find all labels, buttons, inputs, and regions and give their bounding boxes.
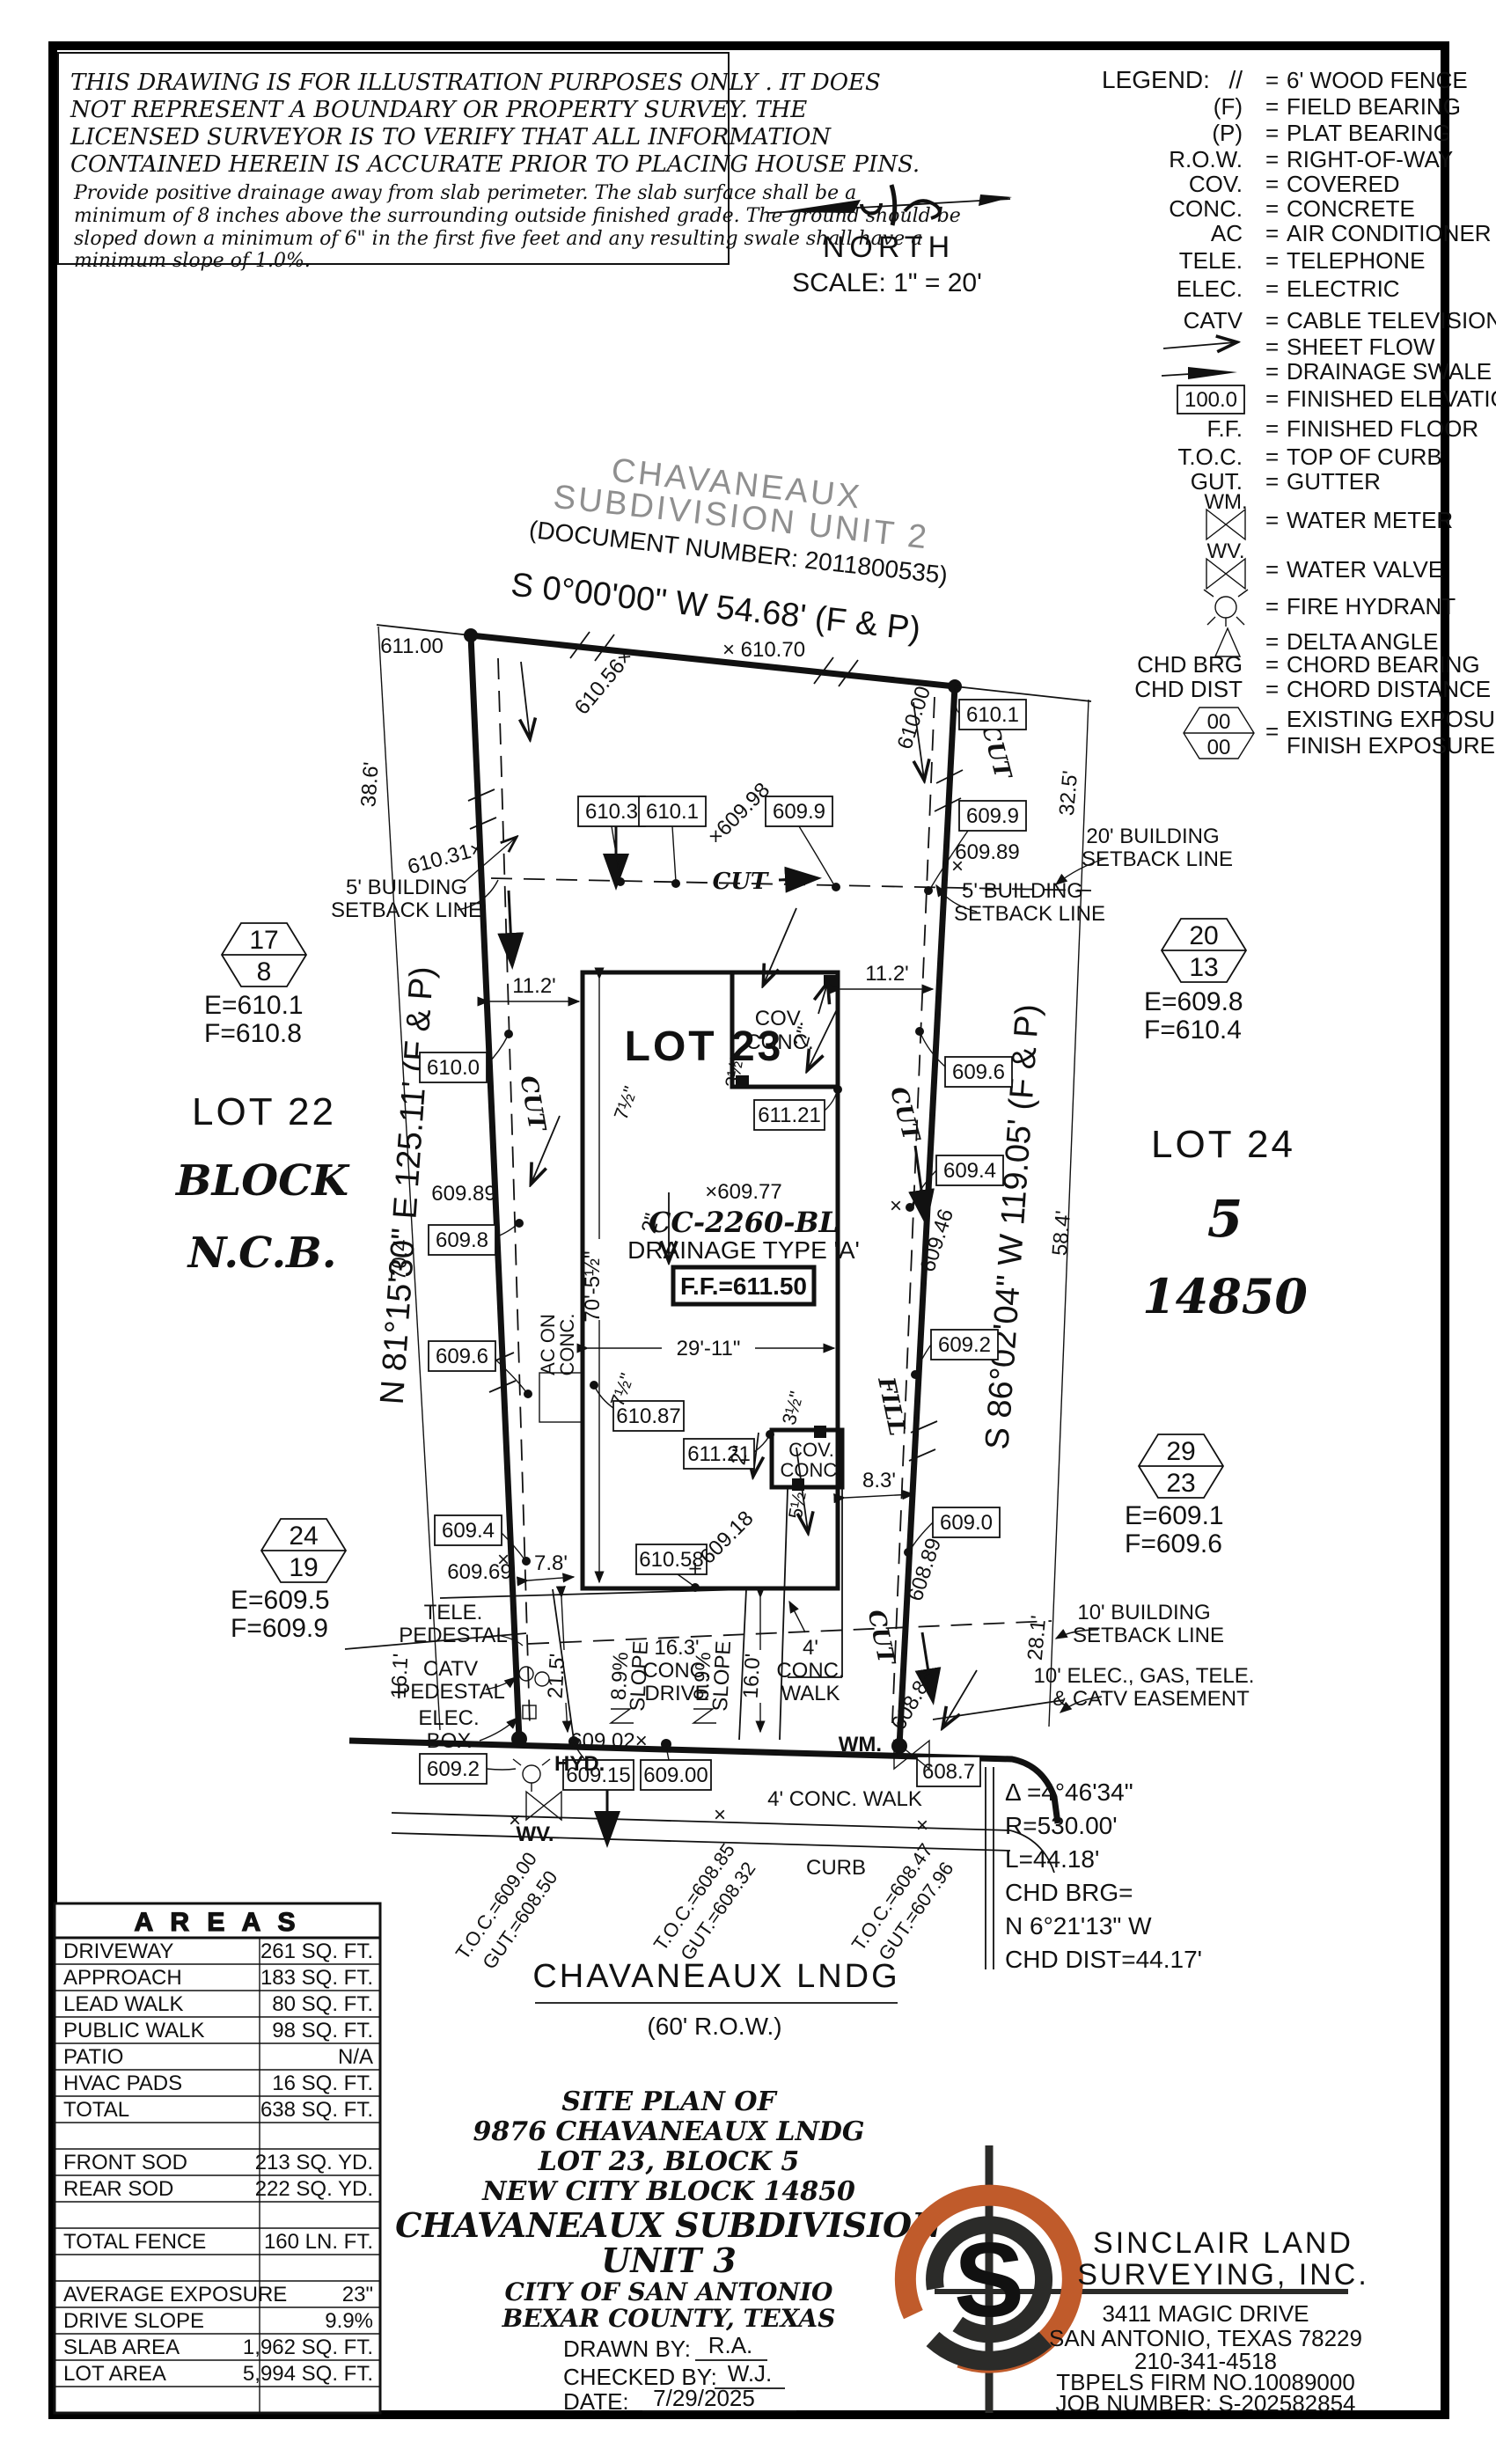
elev-609-00: 609.00 xyxy=(643,1764,708,1787)
scale-label: SCALE: 1" = 20' xyxy=(792,268,982,297)
drawn-by-label: DRAWN BY: xyxy=(563,2336,691,2362)
svg-text:F=609.6: F=609.6 xyxy=(1125,1529,1222,1558)
easement-line xyxy=(933,1700,1063,1720)
block-label: BLOCK xyxy=(174,1156,350,1206)
water-valve-symbol xyxy=(526,1792,561,1820)
svg-text:TOTAL FENCE: TOTAL FENCE xyxy=(63,2230,206,2254)
svg-text:17: 17 xyxy=(249,926,278,955)
svg-text:CONC.: CONC. xyxy=(776,1659,844,1683)
exposure-marker-29-23: 29 23 E=609.1 F=609.6 xyxy=(1125,1434,1224,1558)
water-valve-icon xyxy=(1206,559,1245,589)
svg-text:F=609.9: F=609.9 xyxy=(231,1614,328,1643)
svg-text:HVAC PADS: HVAC PADS xyxy=(63,2072,182,2095)
svg-text:SLOPE: SLOPE xyxy=(708,1640,736,1712)
svg-text:HYD.: HYD. xyxy=(554,1752,605,1776)
svg-text:DRIVEWAY: DRIVEWAY xyxy=(63,1940,173,1963)
title-address: 9876 CHAVANEAUX LNDG xyxy=(473,2116,864,2147)
svg-text:00: 00 xyxy=(1207,710,1231,734)
svg-text:4': 4' xyxy=(803,1636,818,1660)
drawn-by-value: R.A. xyxy=(708,2332,753,2358)
walk-street-label: 4' CONC. WALK xyxy=(767,1787,922,1811)
legend-sym-chd-dist: CHD DIST xyxy=(1134,676,1243,702)
svg-text:FINISHED ELEVATION: FINISHED ELEVATION xyxy=(1287,385,1496,412)
svg-text:19: 19 xyxy=(289,1553,318,1582)
elev-609-6-west: 609.6 xyxy=(436,1345,488,1368)
svg-text:222 SQ. YD.: 222 SQ. YD. xyxy=(255,2177,373,2201)
block-5-label: 5 xyxy=(1207,1189,1243,1249)
spot-610-31: 610.31× xyxy=(405,836,485,879)
svg-text:ELECTRIC: ELECTRIC xyxy=(1287,275,1400,302)
spot-609-69: 609.69 xyxy=(447,1560,511,1584)
swale-arrow xyxy=(509,891,512,964)
elev-610-1: 610.1 xyxy=(646,800,699,824)
svg-text:3½": 3½" xyxy=(778,1389,808,1427)
swale-arrow xyxy=(779,878,817,880)
spot-609-46: 609.46 xyxy=(916,1206,958,1275)
disclaimer-line: Provide positive drainage away from slab… xyxy=(73,182,856,204)
exposure-marker-20-13: 20 13 E=609.8 F=610.4 xyxy=(1144,919,1246,1045)
svg-text:CHORD BEARING: CHORD BEARING xyxy=(1287,651,1480,678)
dim-28-1: 28.1' xyxy=(1023,1615,1051,1661)
svg-text:N/A: N/A xyxy=(338,2045,373,2069)
spot-609-02: 609.02× xyxy=(570,1729,647,1753)
svg-text:6' WOOD FENCE: 6' WOOD FENCE xyxy=(1287,67,1468,93)
legend: LEGEND: // (F) (P) R.O.W. COV. CONC. AC … xyxy=(1102,66,1496,759)
svg-text:APPROACH: APPROACH xyxy=(63,1966,182,1990)
firm-name-line2: SURVEYING, INC. xyxy=(1077,2258,1369,2292)
swale-arrow xyxy=(915,1146,926,1221)
title-ncb: NEW CITY BLOCK 14850 xyxy=(481,2176,855,2207)
svg-text:LEAD WALK: LEAD WALK xyxy=(63,1992,184,2016)
title-subdivision: CHAVANEAUX SUBDIVISION xyxy=(395,2205,943,2245)
svg-text:PUBLIC WALK: PUBLIC WALK xyxy=(63,2019,205,2042)
legend-sym-finished-elev: 100.0 xyxy=(1184,388,1237,412)
corner-pin-sw xyxy=(511,1731,527,1747)
svg-text:F=610.8: F=610.8 xyxy=(204,1019,302,1048)
fill-label: FILL xyxy=(872,1374,911,1438)
curve-delta: Δ =4°46'34" xyxy=(1005,1778,1133,1806)
svg-text:20' BUILDING: 20' BUILDING xyxy=(1086,825,1219,848)
svg-text:LOT AREA: LOT AREA xyxy=(63,2362,166,2386)
water-meter-icon xyxy=(1206,510,1245,539)
svg-text:5½": 5½" xyxy=(784,1484,811,1521)
disclaimer-line: CONTAINED HEREIN IS ACCURATE PRIOR TO PL… xyxy=(70,151,920,178)
svg-text:=: = xyxy=(1265,651,1279,678)
svg-text:9.9%: 9.9% xyxy=(325,2309,373,2333)
spot-609-77: ×609.77 xyxy=(705,1180,781,1204)
legend-sym-catv: CATV xyxy=(1184,307,1243,334)
curve-length: L=44.18' xyxy=(1005,1845,1099,1873)
sheet-flow-arrow xyxy=(943,1670,977,1727)
svg-text:& CATV EASEMENT: & CATV EASEMENT xyxy=(1052,1687,1250,1711)
street-name: CHAVANEAUX LNDG xyxy=(532,1958,899,1995)
legend-sym-row: R.O.W. xyxy=(1169,146,1243,172)
spot-609-89-east: 609.89 xyxy=(955,840,1019,864)
svg-text:16 SQ. FT.: 16 SQ. FT. xyxy=(272,2072,373,2095)
sheet-flow-icon xyxy=(1163,342,1236,348)
svg-text:=: = xyxy=(1265,676,1279,702)
lot-labels: LOT 23 LOT 22 BLOCK N.C.B. LOT 24 5 1485… xyxy=(174,965,1308,1451)
svg-text:=: = xyxy=(1265,146,1279,172)
svg-text:=: = xyxy=(1265,67,1279,93)
legend-descriptions: =6' WOOD FENCE =FIELD BEARING =PLAT BEAR… xyxy=(1265,67,1496,759)
drainage-swale-icon xyxy=(1162,367,1237,379)
legend-sym-ff: F.F. xyxy=(1207,415,1243,442)
svg-text:29: 29 xyxy=(1166,1437,1195,1466)
svg-text:WV.: WV. xyxy=(516,1822,554,1846)
spot-610-00: 610.00 xyxy=(893,684,935,752)
svg-text:PEDESTAL: PEDESTAL xyxy=(399,1624,508,1647)
svg-text:160 LN. FT.: 160 LN. FT. xyxy=(264,2230,373,2254)
logo-s-letter: S xyxy=(954,2221,1024,2339)
svg-text:TELE.: TELE. xyxy=(424,1601,483,1624)
svg-text:2": 2" xyxy=(726,1444,752,1467)
legend-sym-plat-bearing: (P) xyxy=(1212,120,1243,146)
spot-609-89-west: 609.89 xyxy=(431,1182,495,1206)
svg-text:=: = xyxy=(1265,468,1279,495)
legend-sym-chd-brg: CHD BRG xyxy=(1137,651,1243,678)
disclaimer-line: sloped down a minimum of 6" in the first… xyxy=(74,228,922,250)
elev-610-1-ne: 610.1 xyxy=(966,703,1019,727)
exposure-marker-24-19: 24 19 E=609.5 F=609.9 xyxy=(231,1519,346,1643)
svg-text:CONCRETE: CONCRETE xyxy=(1287,195,1415,222)
legend-sym-ac: AC xyxy=(1211,220,1243,246)
svg-text:638 SQ. FT.: 638 SQ. FT. xyxy=(260,2098,373,2122)
svg-text:=: = xyxy=(1265,385,1279,412)
svg-text:=: = xyxy=(1265,718,1279,744)
adjacent-subdivision-title: CHAVANEAUX SUBDIVISION UNIT 2 (DOCUMENT … xyxy=(510,451,950,648)
svg-text:=: = xyxy=(1265,220,1279,246)
curve-data: Δ =4°46'34" R=530.00' L=44.18' CHD BRG= … xyxy=(986,1767,1202,1973)
svg-text:FRONT SOD: FRONT SOD xyxy=(63,2151,187,2174)
dim-21-5: 21.5' xyxy=(544,1653,570,1699)
legend-sym-toc: T.O.C. xyxy=(1177,444,1243,470)
ac-pad xyxy=(539,1373,582,1422)
areas-table-title: A R E A S xyxy=(134,1908,300,1937)
elev-609-8: 609.8 xyxy=(436,1228,488,1252)
checked-by-value: W.J. xyxy=(728,2360,773,2387)
title-site-plan: SITE PLAN OF xyxy=(561,2086,778,2117)
cc-number: CC-2260-BL xyxy=(649,1206,839,1239)
svg-text:00: 00 xyxy=(1207,736,1231,759)
svg-text:AIR CONDITIONER: AIR CONDITIONER xyxy=(1287,220,1492,246)
drainage-type: DRAINAGE TYPE 'A' xyxy=(627,1236,860,1264)
svg-text:WATER METER: WATER METER xyxy=(1287,507,1453,533)
legend-sym-wv: WV. xyxy=(1206,539,1244,563)
spot-609-98: ×609.98 xyxy=(703,778,774,849)
svg-text:213 SQ. YD.: 213 SQ. YD. xyxy=(255,2151,373,2174)
fire-hydrant-symbol xyxy=(513,1759,550,1792)
disclaimer-line: LICENSED SURVEYOR IS TO VERIFY THAT ALL … xyxy=(70,124,832,150)
svg-text:TOTAL: TOTAL xyxy=(63,2098,129,2122)
svg-text:AVERAGE EXPOSURE: AVERAGE EXPOSURE xyxy=(63,2283,287,2306)
lot-24-label: LOT 24 xyxy=(1151,1123,1295,1166)
cut-label: CUT xyxy=(862,1608,900,1668)
svg-text:PATIO: PATIO xyxy=(63,2045,123,2069)
dim-29-11: 29'-11" xyxy=(677,1337,741,1360)
firm-block: S SINCLAIR LAND SURVEYING, INC. 3411 MAG… xyxy=(878,2145,1369,2416)
curve-chord-bearing-label: CHD BRG= xyxy=(1005,1879,1133,1906)
svg-text:COV.: COV. xyxy=(788,1439,834,1461)
svg-text:E=609.5: E=609.5 xyxy=(231,1586,330,1615)
svg-text:20: 20 xyxy=(1189,921,1218,950)
spot-610-70: × 610.70 xyxy=(722,638,805,662)
svg-text:E=609.8: E=609.8 xyxy=(1144,987,1243,1016)
legend-sym-wood-fence: // xyxy=(1228,66,1243,93)
svg-text:7½": 7½" xyxy=(610,1083,642,1123)
svg-text:98 SQ. FT.: 98 SQ. FT. xyxy=(272,2019,373,2042)
svg-text:FIRE HYDRANT: FIRE HYDRANT xyxy=(1287,593,1456,620)
elev-609-9-west: 609.9 xyxy=(773,800,825,824)
cut-label: CUT xyxy=(713,869,769,895)
svg-text:×: × xyxy=(916,1814,928,1837)
svg-text:FIELD BEARING: FIELD BEARING xyxy=(1287,93,1461,120)
dim-16-0: 16.0' xyxy=(739,1653,766,1699)
svg-text:=: = xyxy=(1265,120,1279,146)
north-label: NORTH xyxy=(823,231,955,264)
setback-front-10ft xyxy=(528,1621,1052,1644)
svg-text:ELEC.: ELEC. xyxy=(418,1706,479,1730)
svg-text:TOP OF CURB: TOP OF CURB xyxy=(1287,444,1442,470)
north-arrow-head xyxy=(979,194,1012,206)
legend-sym-conc: CONC. xyxy=(1169,195,1243,222)
svg-text:×: × xyxy=(890,1194,902,1218)
svg-text:SETBACK LINE: SETBACK LINE xyxy=(331,898,482,922)
curve-radius: R=530.00' xyxy=(1005,1812,1118,1839)
svg-text:PLAT BEARING: PLAT BEARING xyxy=(1287,120,1451,146)
svg-text:=: = xyxy=(1265,334,1279,360)
dim-8-3: 8.3' xyxy=(862,1469,896,1492)
svg-text:SHEET FLOW: SHEET FLOW xyxy=(1287,334,1435,360)
date-value: 7/29/2025 xyxy=(653,2385,755,2411)
site-plan-page: THIS DRAWING IS FOR ILLUSTRATION PURPOSE… xyxy=(0,0,1496,2464)
svg-text:PEDESTAL: PEDESTAL xyxy=(396,1680,505,1704)
svg-text:1,962 SQ. FT.: 1,962 SQ. FT. xyxy=(243,2336,373,2359)
street-row-label: (60' R.O.W.) xyxy=(647,2013,781,2040)
svg-text:RIGHT-OF-WAY: RIGHT-OF-WAY xyxy=(1287,146,1453,172)
svg-text:261 SQ. FT.: 261 SQ. FT. xyxy=(260,1940,373,1963)
legend-sym-field-bearing: (F) xyxy=(1214,93,1243,120)
svg-text:E=609.1: E=609.1 xyxy=(1125,1501,1224,1530)
svg-text:=: = xyxy=(1265,195,1279,222)
svg-text:×: × xyxy=(714,1803,726,1827)
spot-610-56: 610.56× xyxy=(570,645,638,719)
curb-label: CURB xyxy=(806,1856,866,1880)
title-lot-block: LOT 23, BLOCK 5 xyxy=(538,2146,799,2177)
dim-7-8: 7.8' xyxy=(534,1551,568,1575)
svg-text:5' BUILDING: 5' BUILDING xyxy=(346,876,467,899)
elev-609-9-east: 609.9 xyxy=(966,804,1019,828)
elev-609-4-west: 609.4 xyxy=(442,1519,495,1543)
svg-text:×: × xyxy=(509,1808,521,1832)
svg-text:183 SQ. FT.: 183 SQ. FT. xyxy=(260,1966,373,1990)
elev-609-2-street: 609.2 xyxy=(427,1757,480,1781)
svg-text:SETBACK LINE: SETBACK LINE xyxy=(954,902,1105,926)
legend-sym-wm: WM. xyxy=(1204,490,1247,514)
svg-text:REAR SOD: REAR SOD xyxy=(63,2177,173,2201)
svg-text:×: × xyxy=(951,854,964,878)
svg-text:CONC.: CONC. xyxy=(781,1459,843,1481)
disclaimer-line: NOT REPRESENT A BOUNDARY OR PROPERTY SUR… xyxy=(70,97,807,123)
date-label: DATE: xyxy=(563,2388,629,2415)
dim-58-4: 58.4' xyxy=(1048,1210,1075,1257)
svg-text:FINISH EXPOSURE: FINISH EXPOSURE xyxy=(1287,732,1495,759)
svg-text:13: 13 xyxy=(1189,953,1218,982)
elev-608-7: 608.7 xyxy=(922,1760,975,1784)
svg-text:COVERED: COVERED xyxy=(1287,171,1400,197)
svg-text:FINISHED FLOOR: FINISHED FLOOR xyxy=(1287,415,1478,442)
svg-text:=: = xyxy=(1265,593,1279,620)
dim-11-2-east: 11.2' xyxy=(865,962,909,986)
svg-text:=: = xyxy=(1265,93,1279,120)
svg-text:23: 23 xyxy=(1166,1469,1195,1498)
svg-text:=: = xyxy=(1265,307,1279,334)
svg-text:=: = xyxy=(1265,415,1279,442)
svg-text:24: 24 xyxy=(289,1522,318,1551)
svg-text:80 SQ. FT.: 80 SQ. FT. xyxy=(272,1992,373,2016)
firm-name-line1: SINCLAIR LAND xyxy=(1093,2226,1353,2260)
curve-chord-bearing: N 6°21'13" W xyxy=(1005,1912,1152,1940)
svg-text:SLAB AREA: SLAB AREA xyxy=(63,2336,180,2359)
areas-table: A R E A S DRIVEWAY261 SQ. FT. APPROACH18… xyxy=(55,1903,380,2413)
elev-610-3: 610.3 xyxy=(585,800,638,824)
svg-text:=: = xyxy=(1265,556,1279,583)
svg-text:DRIVE SLOPE: DRIVE SLOPE xyxy=(63,2309,204,2333)
dim-11-2-west: 11.2' xyxy=(512,974,556,998)
elev-609-6-east: 609.6 xyxy=(952,1060,1005,1084)
svg-text:WALK: WALK xyxy=(781,1682,840,1705)
svg-text:WM.: WM. xyxy=(839,1733,882,1756)
svg-text:TELEPHONE: TELEPHONE xyxy=(1287,247,1426,274)
svg-text:CABLE TELEVISION: CABLE TELEVISION xyxy=(1287,307,1496,334)
elev-611-21-top: 611.21 xyxy=(758,1104,821,1127)
svg-text:CONC.: CONC. xyxy=(556,1314,578,1376)
svg-text:E=610.1: E=610.1 xyxy=(204,991,304,1020)
title-block: SITE PLAN OF 9876 CHAVANEAUX LNDG LOT 23… xyxy=(395,2086,943,2415)
svg-text:10' ELEC., GAS, TELE.: 10' ELEC., GAS, TELE. xyxy=(1034,1664,1255,1688)
svg-text:8: 8 xyxy=(257,957,272,986)
dim-32-5: 32.5' xyxy=(1055,770,1082,817)
drive-walk-labels: 8.9% SLOPE 16.3' CONC. DRIVE 9.9% SLOPE … xyxy=(607,1602,845,1723)
legend-sym-tele: TELE. xyxy=(1179,247,1243,274)
svg-text:=: = xyxy=(1265,444,1279,470)
title-city: CITY OF SAN ANTONIO xyxy=(505,2277,833,2306)
finished-floor-value: F.F.=611.50 xyxy=(680,1272,807,1300)
ncb-label: N.C.B. xyxy=(187,1228,337,1278)
dim-70-5half: 70'-5½" xyxy=(581,1250,605,1322)
catv-pedestal-symbol xyxy=(519,1667,533,1681)
svg-text:SETBACK LINE: SETBACK LINE xyxy=(1073,1624,1224,1647)
elev-609-4-east: 609.4 xyxy=(943,1159,996,1183)
disclaimer-line: minimum slope of 1.0%. xyxy=(74,250,311,272)
svg-text:=: = xyxy=(1265,247,1279,274)
svg-text:F=610.4: F=610.4 xyxy=(1144,1016,1242,1045)
legend-sym-elec: ELEC. xyxy=(1177,275,1243,302)
exposure-marker-17-8: 17 8 E=610.1 F=610.8 xyxy=(204,923,306,1048)
svg-text:CATV: CATV xyxy=(423,1657,478,1681)
svg-text:DRAINAGE SWALE: DRAINAGE SWALE xyxy=(1287,358,1492,385)
curve-chord-distance: CHD DIST=44.17' xyxy=(1005,1946,1202,1973)
svg-text:5,994 SQ. FT.: 5,994 SQ. FT. xyxy=(243,2362,373,2386)
title-unit: UNIT 3 xyxy=(601,2240,737,2280)
disclaimer-line: THIS DRAWING IS FOR ILLUSTRATION PURPOSE… xyxy=(70,70,881,96)
svg-text:=: = xyxy=(1265,275,1279,302)
svg-text:5' BUILDING: 5' BUILDING xyxy=(962,879,1083,903)
firm-address1: 3411 MAGIC DRIVE xyxy=(1102,2300,1309,2327)
svg-text:=: = xyxy=(1265,358,1279,385)
firm-job-number: JOB NUMBER: S-202582854 xyxy=(1055,2390,1355,2416)
elev-610-0: 610.0 xyxy=(427,1056,480,1080)
dim-611: 611.00 xyxy=(380,634,444,658)
legend-sym-cov: COV. xyxy=(1189,171,1243,197)
title-county: BEXAR COUNTY, TEXAS xyxy=(502,2304,836,2333)
svg-text:EXISTING EXPOSURE: EXISTING EXPOSURE xyxy=(1287,706,1496,732)
svg-text:=: = xyxy=(1265,171,1279,197)
legend-title: LEGEND: xyxy=(1102,66,1210,93)
svg-text:BOX: BOX xyxy=(427,1729,472,1753)
svg-text:WATER VALVE: WATER VALVE xyxy=(1287,556,1443,583)
sheet-flow-arrow xyxy=(521,662,530,737)
dim-38-6: 38.6' xyxy=(356,761,384,808)
cut-label: CUT xyxy=(976,722,1016,783)
exposure-hexagon-icon: 00 00 xyxy=(1184,708,1254,759)
ncb-14850-label: 14850 xyxy=(1142,1268,1308,1324)
elev-609-0: 609.0 xyxy=(940,1511,993,1535)
dim-70-4: 70.4' xyxy=(386,1235,414,1281)
lot-22-label: LOT 22 xyxy=(192,1090,336,1133)
svg-text:10' BUILDING: 10' BUILDING xyxy=(1077,1601,1210,1624)
elev-609-2-east: 609.2 xyxy=(938,1333,991,1357)
site-plan-drawing: THIS DRAWING IS FOR ILLUSTRATION PURPOSE… xyxy=(0,0,1496,2464)
svg-text:=: = xyxy=(1265,507,1279,533)
svg-text:23": 23" xyxy=(342,2283,373,2306)
svg-text:CHORD DISTANCE: CHORD DISTANCE xyxy=(1287,676,1491,702)
svg-text:GUTTER: GUTTER xyxy=(1287,468,1381,495)
fire-hydrant-icon xyxy=(1204,590,1248,627)
cut-label: CUT xyxy=(515,1074,551,1134)
